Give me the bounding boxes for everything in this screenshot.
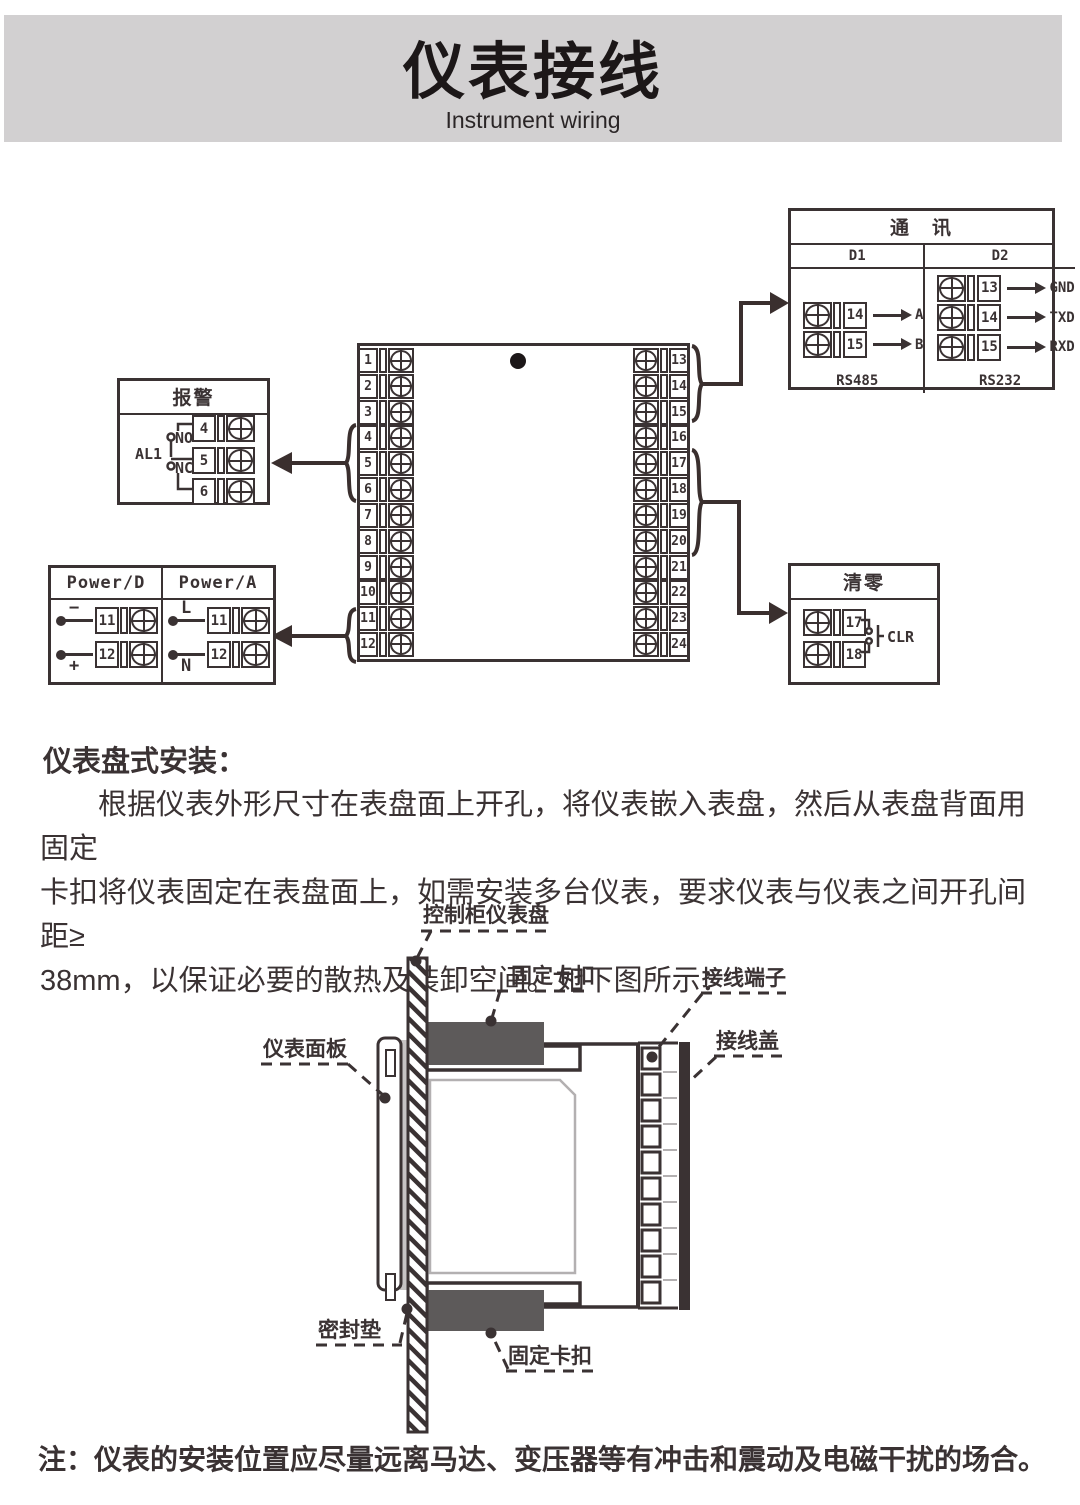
- alarm-relay-label: AL1: [135, 445, 162, 463]
- terminal-separator: [660, 555, 668, 580]
- signal-label: TXD: [1049, 310, 1074, 326]
- signal-arrow-icon: [1007, 287, 1037, 290]
- power-terminal-row: N12: [169, 641, 273, 668]
- wire-polarity-label: −: [69, 600, 79, 617]
- terminal-row: 21: [633, 555, 689, 580]
- screw-terminal-icon: [388, 374, 414, 399]
- terminal-separator: [967, 334, 975, 361]
- leader-dots: [380, 956, 658, 1339]
- comm-d2-footer: RS232: [925, 373, 1074, 393]
- screw-terminal-icon: [226, 478, 255, 505]
- brace-clear-terminals: [692, 450, 702, 555]
- terminal-number: 3: [358, 400, 378, 425]
- screw-terminal-icon: [129, 607, 158, 634]
- wire-icon: +: [57, 653, 93, 656]
- terminal-number: 14: [669, 374, 689, 399]
- terminal-number: 11: [358, 606, 378, 631]
- comm-terminal-row: 15B: [803, 331, 923, 358]
- alarm-box-title: 报警: [120, 381, 267, 415]
- screw-terminal-icon: [803, 641, 832, 668]
- bezel-clip-bottom: [386, 1274, 395, 1300]
- terminal-row: 13: [633, 348, 689, 373]
- terminal-number: 12: [358, 632, 378, 657]
- terminal-number: 17: [669, 451, 689, 476]
- terminal-row: 24: [633, 632, 689, 657]
- terminal-cover-bar: [679, 1042, 690, 1310]
- comm-d1-footer: RS485: [791, 373, 923, 393]
- clip-rail-bottom: [427, 1283, 580, 1304]
- terminal-number: 12: [207, 641, 231, 668]
- power-a-header: Power/A: [163, 568, 273, 600]
- install-line: 根据仪表外形尺寸在表盘面上开孔，将仪表嵌入表盘，然后从表盘背面用固定: [40, 783, 1045, 871]
- power-terminal-row: L11: [169, 607, 273, 634]
- brace-power-terminals: [346, 609, 356, 662]
- install-heading: 仪表盘式安装：: [43, 738, 246, 780]
- label-gasket: 密封垫: [318, 1318, 381, 1342]
- left-terminal-column: 1 2 3 4 5 6 7 8 9 10 11 12: [358, 348, 414, 657]
- terminal-separator: [660, 503, 668, 528]
- clear-box: 清零 17 18 CLR: [788, 563, 940, 685]
- terminal-separator: [833, 609, 841, 636]
- clear-terminal-row: 17: [803, 609, 866, 636]
- terminal-separator: [660, 451, 668, 476]
- brace-alarm-terminals: [346, 425, 356, 501]
- alarm-box: 报警 4 5 6 NO NC AL1: [117, 378, 270, 505]
- label-wiring-cover: 接线盖: [716, 1029, 779, 1053]
- terminal-row: 15: [633, 400, 689, 425]
- comm-terminal-row: 14TXD: [937, 304, 1074, 331]
- screw-terminal-icon: [388, 606, 414, 631]
- wire-polarity-label: L: [181, 600, 191, 617]
- terminal-number: 23: [669, 606, 689, 631]
- fixing-clamp-bottom: [424, 1290, 544, 1331]
- main-terminal-block: 1 2 3 4 5 6 7 8 9 10 11 12 13 14 15 16 1…: [357, 343, 690, 662]
- cabinet-panel: [408, 958, 427, 1432]
- comm-d2-header: D2: [925, 245, 1074, 269]
- alarm-terminal-row: 4: [192, 415, 255, 442]
- terminal-number: 15: [843, 331, 867, 358]
- terminal-row: 18: [633, 477, 689, 502]
- terminal-number: 1: [358, 348, 378, 373]
- terminal-number: 5: [358, 451, 378, 476]
- signal-label: RXD: [1049, 339, 1074, 355]
- line-to-clear: [702, 502, 772, 613]
- terminal-separator: [120, 641, 128, 668]
- installation-note: 注：仪表的安装位置应尽量远离马达、变压器等有冲击和震动及电磁干扰的场合。: [38, 1438, 1068, 1478]
- page-subtitle: Instrument wiring: [4, 107, 1062, 134]
- terminal-number: 4: [358, 425, 378, 450]
- terminal-number: 4: [192, 415, 216, 442]
- terminal-separator: [379, 580, 387, 605]
- signal-arrow-icon: [873, 314, 903, 317]
- terminal-number: 8: [358, 529, 378, 554]
- terminal-row: 9: [358, 555, 414, 580]
- wire-polarity-label: +: [69, 658, 79, 675]
- terminal-separator: [379, 451, 387, 476]
- terminal-separator: [660, 400, 668, 425]
- terminal-number: 20: [669, 529, 689, 554]
- screw-terminal-icon: [388, 580, 414, 605]
- clear-box-title: 清零: [791, 566, 937, 600]
- terminal-number: 14: [843, 302, 867, 329]
- screw-terminal-icon: [388, 503, 414, 528]
- power-d-column: Power/D −11 +12: [51, 568, 163, 682]
- terminal-number: 6: [358, 477, 378, 502]
- bezel-clip-top: [386, 1050, 395, 1076]
- terminal-number: 24: [669, 632, 689, 657]
- terminal-number: 13: [669, 348, 689, 373]
- alarm-nc-label: NC: [175, 459, 193, 477]
- terminal-row: 2: [358, 374, 414, 399]
- front-panel-bezel: [378, 1038, 401, 1290]
- body-inner-outline: [430, 1080, 575, 1273]
- terminal-row: 14: [633, 374, 689, 399]
- alarm-no-label: NO: [175, 429, 193, 447]
- terminal-number: 12: [95, 641, 119, 668]
- terminal-separator: [379, 555, 387, 580]
- screw-terminal-icon: [388, 477, 414, 502]
- terminal-number: 19: [669, 503, 689, 528]
- terminal-separator: [232, 607, 240, 634]
- terminal-row: 5: [358, 451, 414, 476]
- wire-icon: L: [169, 619, 205, 622]
- screw-terminal-icon: [388, 400, 414, 425]
- screw-terminal-icon: [633, 425, 659, 450]
- power-box: Power/D −11 +12 Power/A L11 N12: [48, 565, 276, 685]
- terminal-number: 11: [207, 607, 231, 634]
- signal-label: A: [915, 307, 923, 323]
- terminal-row: 12: [358, 632, 414, 657]
- terminal-separator: [833, 331, 841, 358]
- screw-terminal-icon: [633, 451, 659, 476]
- terminal-separator: [379, 503, 387, 528]
- right-terminal-column: 13 14 15 16 17 18 19 20 21 22 23 24: [633, 348, 689, 657]
- power-d-header: Power/D: [51, 568, 161, 600]
- screw-terminal-icon: [226, 447, 255, 474]
- install-paragraph: 根据仪表外形尺寸在表盘面上开孔，将仪表嵌入表盘，然后从表盘背面用固定 卡扣将仪表…: [40, 783, 1045, 1003]
- terminal-number: 21: [669, 555, 689, 580]
- terminal-separator: [379, 400, 387, 425]
- screw-terminal-icon: [633, 374, 659, 399]
- terminal-separator: [217, 447, 225, 474]
- power-terminal-row: +12: [57, 641, 161, 668]
- alarm-terminal-row: 6: [192, 478, 255, 505]
- terminal-row: 16: [633, 425, 689, 450]
- screw-terminal-icon: [633, 555, 659, 580]
- terminal-number: 16: [669, 425, 689, 450]
- clip-rail-top: [427, 1046, 580, 1070]
- terminal-separator: [660, 477, 668, 502]
- comm-terminal-row: 15RXD: [937, 334, 1074, 361]
- communication-box: 通 讯 D1 14A 15B RS485 D2 13GND 14TXD 15RX…: [788, 208, 1055, 390]
- terminal-separator: [379, 425, 387, 450]
- terminal-separator: [660, 425, 668, 450]
- screw-terminal-icon: [633, 580, 659, 605]
- terminal-row: 1: [358, 348, 414, 373]
- screw-terminal-icon: [388, 555, 414, 580]
- terminal-separator: [833, 302, 841, 329]
- terminal-row: 10: [358, 580, 414, 605]
- terminal-row: 11: [358, 606, 414, 631]
- screw-terminal-icon: [803, 302, 832, 329]
- terminal-row: 3: [358, 400, 414, 425]
- power-a-column: Power/A L11 N12: [163, 568, 273, 682]
- terminal-separator: [660, 606, 668, 631]
- terminal-number: 6: [192, 478, 216, 505]
- clear-signal-label: CLR: [887, 628, 915, 646]
- screw-terminal-icon: [226, 415, 255, 442]
- terminal-row: 20: [633, 529, 689, 554]
- terminal-number: 5: [192, 447, 216, 474]
- terminal-separator: [660, 529, 668, 554]
- terminal-row: 7: [358, 503, 414, 528]
- terminal-separator: [379, 477, 387, 502]
- gasket-strip: [400, 1040, 409, 1290]
- brace-comm-terminals: [692, 346, 702, 421]
- power-terminal-row: −11: [57, 607, 161, 634]
- comm-d1-header: D1: [791, 245, 923, 269]
- screw-terminal-icon: [803, 609, 832, 636]
- fixing-clamp-top: [424, 1022, 544, 1065]
- screw-terminal-icon: [633, 606, 659, 631]
- terminal-separator: [379, 632, 387, 657]
- terminal-row: 22: [633, 580, 689, 605]
- screw-terminal-icon: [633, 529, 659, 554]
- terminal-number: 18: [669, 477, 689, 502]
- screw-terminal-icon: [241, 641, 270, 668]
- terminal-separator: [379, 374, 387, 399]
- screw-terminal-icon: [803, 331, 832, 358]
- indicator-dot: [510, 353, 526, 369]
- terminal-row: 19: [633, 503, 689, 528]
- wire-icon: −: [57, 619, 93, 622]
- terminal-separator: [967, 275, 975, 302]
- terminal-separator: [660, 632, 668, 657]
- terminal-separator: [379, 348, 387, 373]
- terminal-number: 18: [842, 641, 866, 668]
- screw-terminal-icon: [388, 425, 414, 450]
- wire-icon: N: [169, 653, 205, 656]
- screw-terminal-icon: [633, 632, 659, 657]
- wire-polarity-label: N: [181, 658, 191, 675]
- terminal-number: 7: [358, 503, 378, 528]
- comm-box-title: 通 讯: [791, 211, 1052, 245]
- label-fixing-clamp-bottom: 固定卡扣: [508, 1344, 592, 1368]
- terminal-separator: [217, 415, 225, 442]
- terminal-separator: [379, 529, 387, 554]
- comm-terminal-row: 13GND: [937, 275, 1074, 302]
- terminal-strip-blocks: [642, 1048, 660, 1303]
- signal-arrow-icon: [1007, 346, 1037, 349]
- terminal-row: 4: [358, 425, 414, 450]
- signal-arrow-icon: [873, 343, 903, 346]
- terminal-number: 17: [842, 609, 866, 636]
- terminal-number: 10: [358, 580, 378, 605]
- comm-d1-column: D1 14A 15B RS485: [791, 245, 925, 393]
- terminal-separator: [379, 606, 387, 631]
- install-line: 卡扣将仪表固定在表盘面上，如需安装多台仪表，要求仪表与仪表之间开孔间距≥: [40, 871, 1045, 959]
- page-title: 仪表接线: [4, 42, 1062, 104]
- page-header: 仪表接线 Instrument wiring: [4, 15, 1062, 142]
- arrowhead-clear: [769, 602, 788, 624]
- terminal-separator: [660, 374, 668, 399]
- terminal-row: 23: [633, 606, 689, 631]
- line-to-comm: [702, 303, 773, 384]
- terminal-row: 17: [633, 451, 689, 476]
- screw-terminal-icon: [633, 348, 659, 373]
- comm-d2-column: D2 13GND 14TXD 15RXD RS232: [925, 245, 1074, 393]
- terminal-separator: [660, 348, 668, 373]
- terminal-number: 15: [669, 400, 689, 425]
- terminal-number: 14: [977, 304, 1001, 331]
- screw-terminal-icon: [937, 334, 966, 361]
- screw-terminal-icon: [388, 529, 414, 554]
- terminal-number: 13: [977, 275, 1001, 302]
- terminal-separator: [660, 580, 668, 605]
- screw-terminal-icon: [633, 503, 659, 528]
- screw-terminal-icon: [129, 641, 158, 668]
- terminal-row: 8: [358, 529, 414, 554]
- comm-terminal-row: 14A: [803, 302, 923, 329]
- screw-terminal-icon: [388, 632, 414, 657]
- terminal-number: 22: [669, 580, 689, 605]
- signal-label: GND: [1049, 280, 1074, 296]
- terminal-strip-dividers: [663, 1072, 677, 1280]
- terminal-strip-edges: [638, 1043, 678, 1308]
- manual-page: 仪表接线 Instrument wiring 1 2 3: [0, 0, 1080, 1505]
- terminal-separator: [120, 607, 128, 634]
- terminal-number: 2: [358, 374, 378, 399]
- alarm-terminal-row: 5: [192, 447, 255, 474]
- arrowhead-alarm: [271, 452, 292, 474]
- signal-arrow-icon: [1007, 316, 1037, 319]
- clear-terminal-row: 18: [803, 641, 866, 668]
- terminal-separator: [967, 304, 975, 331]
- terminal-separator: [833, 641, 841, 668]
- terminal-number: 11: [95, 607, 119, 634]
- label-front-panel: 仪表面板: [262, 1038, 348, 1061]
- screw-terminal-icon: [241, 607, 270, 634]
- screw-terminal-icon: [388, 348, 414, 373]
- terminal-number: 15: [977, 334, 1001, 361]
- arrowhead-comm: [770, 292, 789, 314]
- screw-terminal-icon: [633, 400, 659, 425]
- screw-terminal-icon: [937, 275, 966, 302]
- terminal-separator: [232, 641, 240, 668]
- signal-label: B: [915, 337, 923, 353]
- screw-terminal-icon: [388, 451, 414, 476]
- install-line: 38mm，以保证必要的散热及装卸空间。如下图所示：: [40, 959, 1045, 1003]
- screw-terminal-icon: [633, 477, 659, 502]
- terminal-row: 6: [358, 477, 414, 502]
- screw-terminal-icon: [937, 304, 966, 331]
- terminal-number: 9: [358, 555, 378, 580]
- terminal-separator: [217, 478, 225, 505]
